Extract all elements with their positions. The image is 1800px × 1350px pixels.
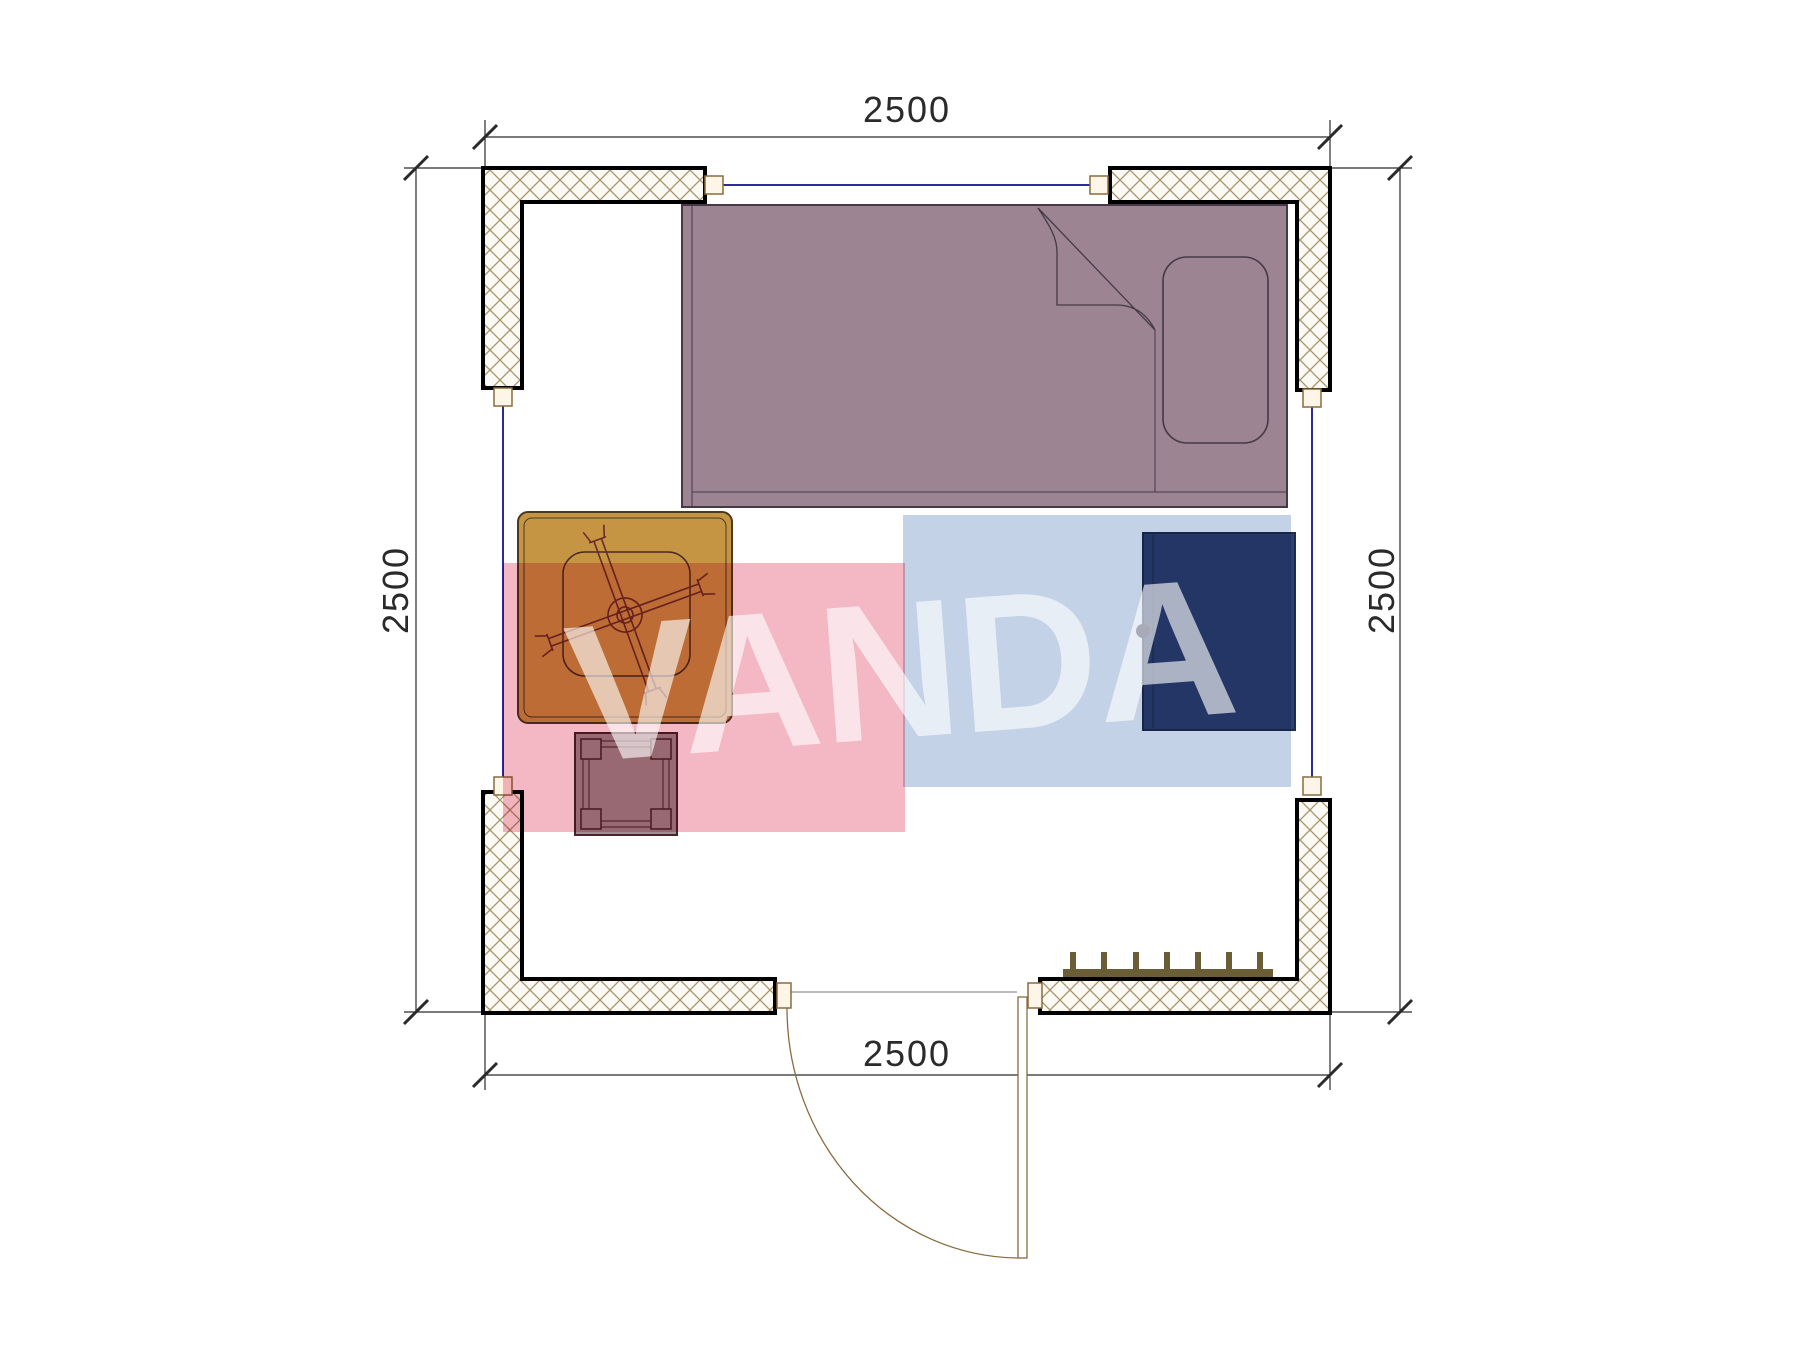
window-top — [705, 176, 1108, 194]
door-jamb-left — [777, 983, 791, 1008]
door-jamb-right — [1028, 983, 1042, 1008]
dimension-label-bottom: 2500 — [863, 1033, 951, 1074]
pillow — [1163, 257, 1268, 443]
dimension-label-left: 2500 — [375, 546, 416, 634]
wall-bottom-right — [1040, 800, 1330, 1013]
floor-plan-canvas: 2500 2500 2500 2500 — [0, 0, 1800, 1350]
dimension-label-top: 2500 — [863, 89, 951, 130]
wall-top-left — [483, 168, 705, 388]
radiator — [1063, 952, 1273, 979]
door-leaf — [1018, 997, 1027, 1258]
bed — [682, 205, 1287, 507]
dimension-label-right: 2500 — [1361, 546, 1402, 634]
door — [777, 983, 1042, 1258]
